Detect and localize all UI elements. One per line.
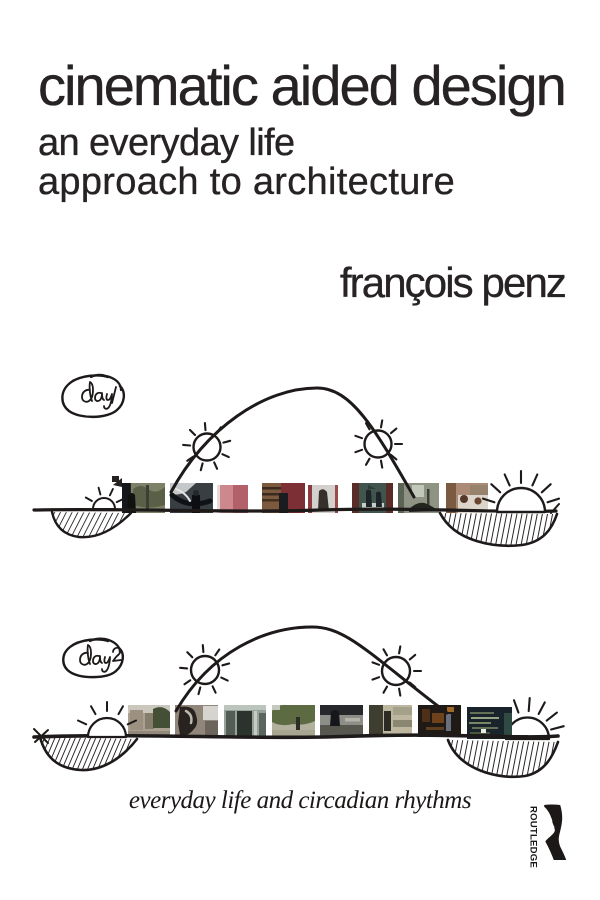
svg-text:everyday life and circadian rh: everyday life and circadian rhythms xyxy=(129,787,471,814)
svg-text:ROUTLEDGE: ROUTLEDGE xyxy=(528,806,539,868)
